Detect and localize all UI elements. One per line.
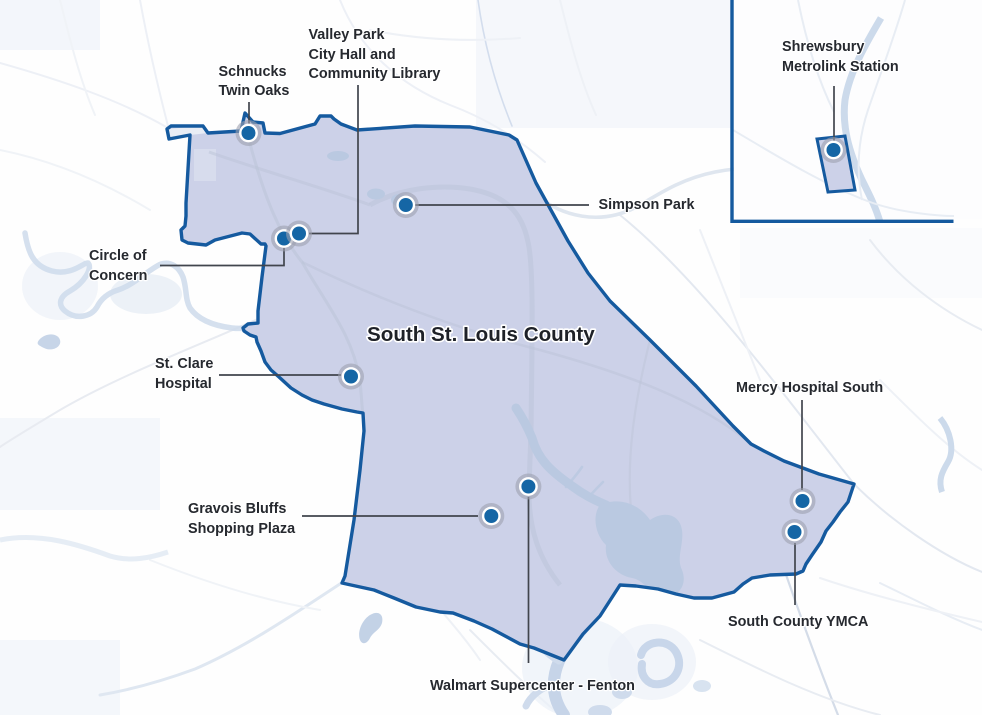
svg-text:Twin Oaks: Twin Oaks — [219, 83, 290, 99]
svg-text:Circle of: Circle of — [89, 248, 147, 264]
svg-text:Shopping Plaza: Shopping Plaza — [188, 521, 296, 537]
svg-text:Concern: Concern — [89, 268, 147, 284]
svg-text:Valley Park: Valley Park — [309, 27, 386, 43]
svg-text:Mercy Hospital South: Mercy Hospital South — [736, 380, 883, 396]
svg-text:Shrewsbury: Shrewsbury — [782, 39, 864, 55]
svg-text:Community Library: Community Library — [309, 66, 441, 82]
svg-text:South County YMCA: South County YMCA — [728, 614, 869, 630]
svg-text:South St. Louis County: South St. Louis County — [367, 323, 595, 346]
svg-text:City Hall and: City Hall and — [309, 47, 396, 63]
svg-text:St. Clare: St. Clare — [155, 356, 213, 372]
svg-text:Simpson Park: Simpson Park — [599, 197, 696, 213]
svg-text:Gravois Bluffs: Gravois Bluffs — [188, 501, 286, 517]
svg-text:Hospital: Hospital — [155, 376, 212, 392]
svg-text:Walmart Supercenter - Fenton: Walmart Supercenter - Fenton — [430, 678, 635, 694]
svg-text:Metrolink Station: Metrolink Station — [782, 59, 899, 75]
svg-text:Schnucks: Schnucks — [219, 64, 287, 80]
